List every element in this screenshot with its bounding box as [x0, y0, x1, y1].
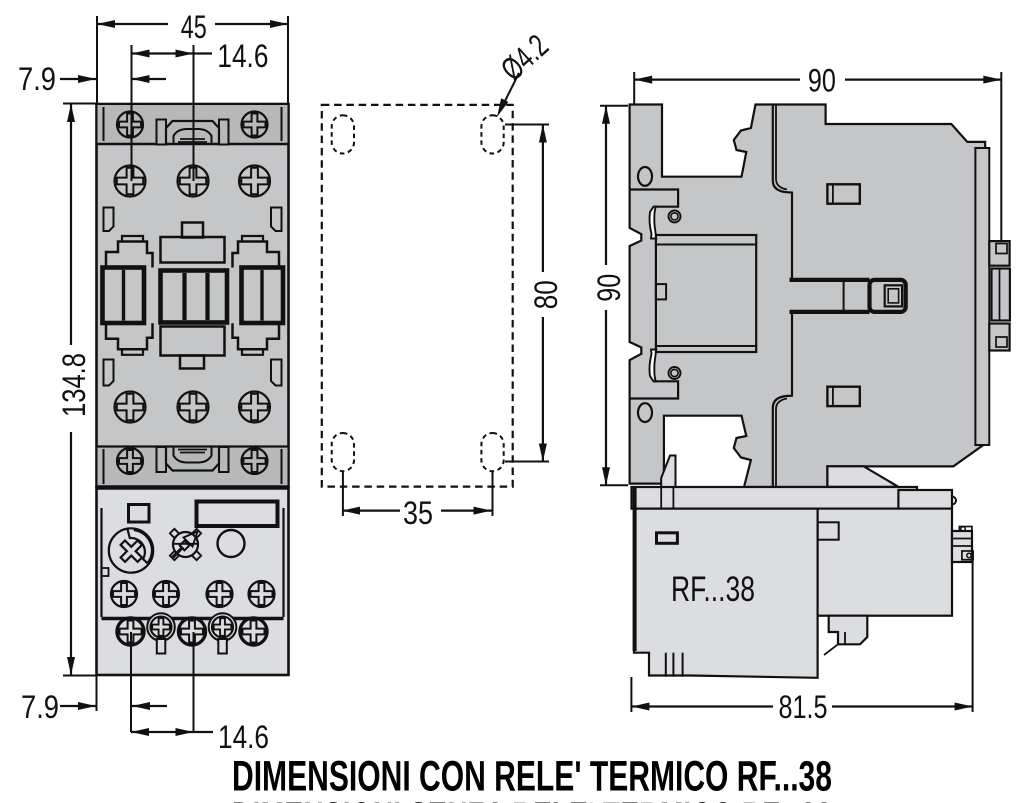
- svg-text:81.5: 81.5: [779, 689, 828, 725]
- svg-text:7.9: 7.9: [18, 61, 56, 97]
- svg-text:90: 90: [808, 63, 836, 99]
- svg-text:DIMENSIONI SENZA RELE' TERMICO: DIMENSIONI SENZA RELE' TERMICO RF...38: [232, 794, 832, 803]
- svg-text:7.9: 7.9: [21, 689, 59, 725]
- svg-text:90: 90: [591, 274, 627, 302]
- svg-text:14.6: 14.6: [217, 38, 268, 74]
- svg-text:RF...38: RF...38: [671, 570, 755, 609]
- svg-text:45: 45: [181, 9, 207, 45]
- svg-text:35: 35: [403, 495, 433, 531]
- svg-text:14.6: 14.6: [218, 719, 269, 755]
- svg-text:80: 80: [528, 280, 564, 309]
- svg-text:134.8: 134.8: [56, 353, 92, 417]
